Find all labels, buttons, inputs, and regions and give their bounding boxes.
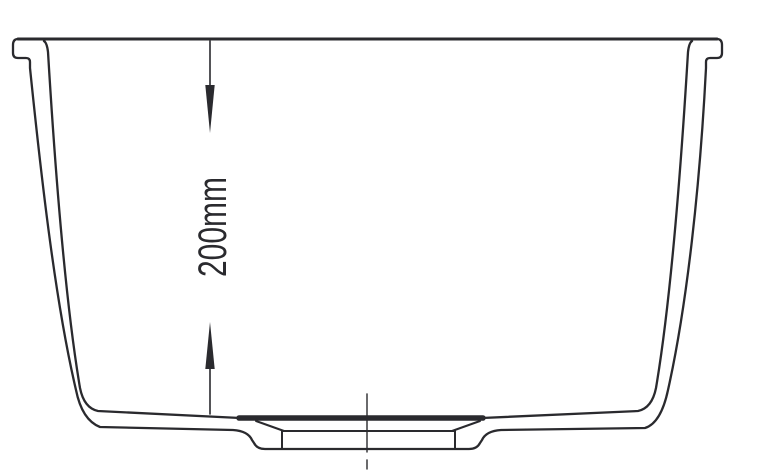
technical-drawing-canvas: 200mm: [0, 0, 775, 474]
dimension-label: 200mm: [191, 177, 235, 277]
drain-chamfer-right: [452, 421, 480, 431]
basin-outer-contour: [13, 39, 722, 449]
dimension-arrow-up-icon: [205, 322, 214, 369]
basin-cross-section-drawing: 200mm: [0, 0, 775, 474]
drain-chamfer-left: [256, 421, 284, 431]
basin-inner-wall-right: [482, 41, 692, 418]
dimension-arrow-down-icon: [205, 85, 214, 133]
drawing-linework: [13, 39, 722, 469]
